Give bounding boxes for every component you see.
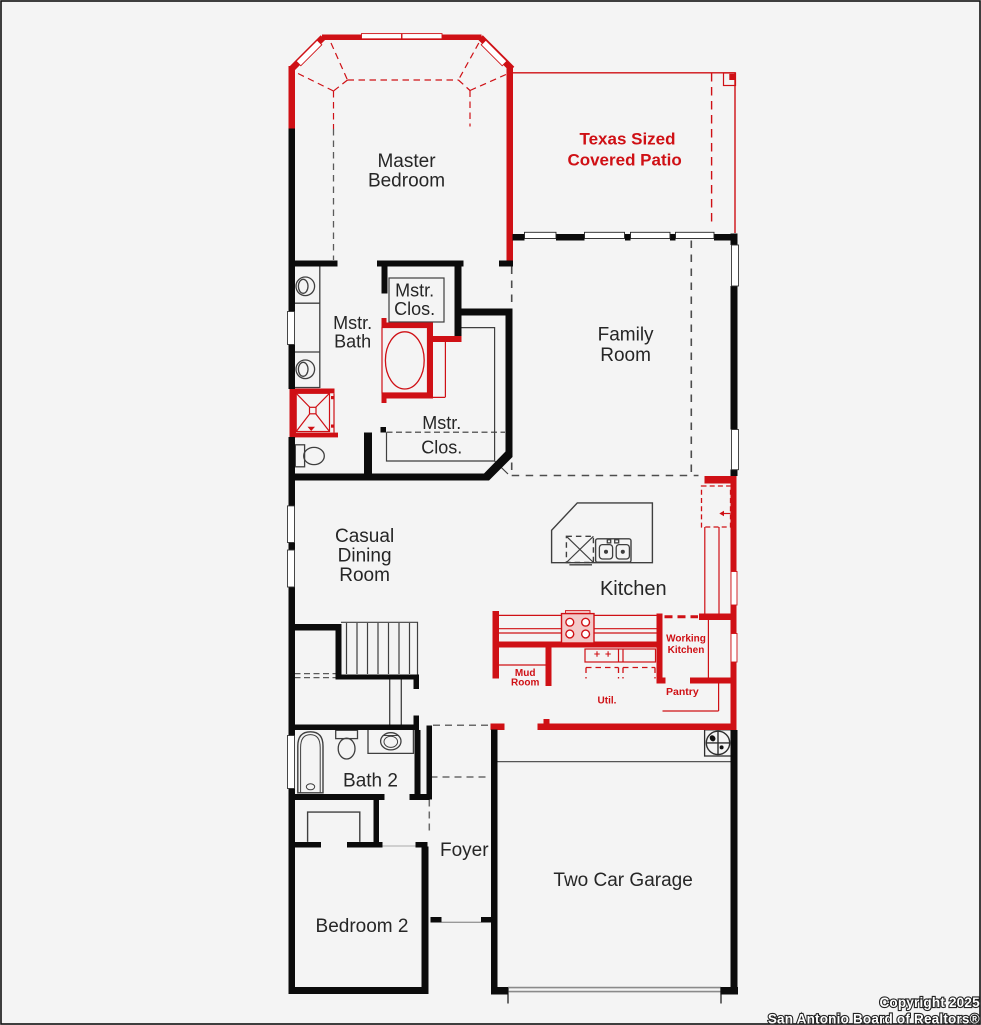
svg-text:Mstr.: Mstr. — [333, 313, 372, 333]
svg-text:Clos.: Clos. — [421, 438, 462, 458]
svg-text:Room: Room — [600, 345, 651, 366]
svg-text:Kitchen: Kitchen — [668, 645, 705, 656]
svg-text:Bedroom 2: Bedroom 2 — [316, 916, 409, 937]
svg-text:Dining: Dining — [338, 546, 392, 567]
svg-text:Bath: Bath — [334, 331, 371, 351]
svg-text:Texas Sized: Texas Sized — [579, 130, 675, 149]
svg-text:Pantry: Pantry — [666, 686, 699, 698]
svg-text:San Antonio Board of Realtors®: San Antonio Board of Realtors® — [768, 1011, 980, 1025]
svg-text:Mstr.: Mstr. — [395, 281, 434, 301]
svg-text:Room: Room — [339, 565, 390, 586]
svg-text:Room: Room — [511, 677, 539, 688]
svg-text:Two Car Garage: Two Car Garage — [553, 870, 692, 891]
svg-text:Master: Master — [377, 151, 436, 172]
svg-text:Bedroom: Bedroom — [368, 171, 445, 192]
svg-text:Mstr.: Mstr. — [422, 413, 461, 433]
svg-text:Covered Patio: Covered Patio — [567, 151, 681, 170]
svg-text:Copyright 2025: Copyright 2025 — [879, 995, 980, 1010]
svg-text:Casual: Casual — [335, 526, 394, 547]
svg-text:Clos.: Clos. — [394, 299, 435, 319]
svg-text:Foyer: Foyer — [440, 840, 489, 861]
svg-text:Kitchen: Kitchen — [600, 578, 667, 600]
svg-text:Bath 2: Bath 2 — [343, 770, 398, 791]
svg-text:Family: Family — [598, 325, 654, 346]
svg-text:Util.: Util. — [598, 695, 617, 706]
svg-text:Working: Working — [666, 634, 706, 645]
